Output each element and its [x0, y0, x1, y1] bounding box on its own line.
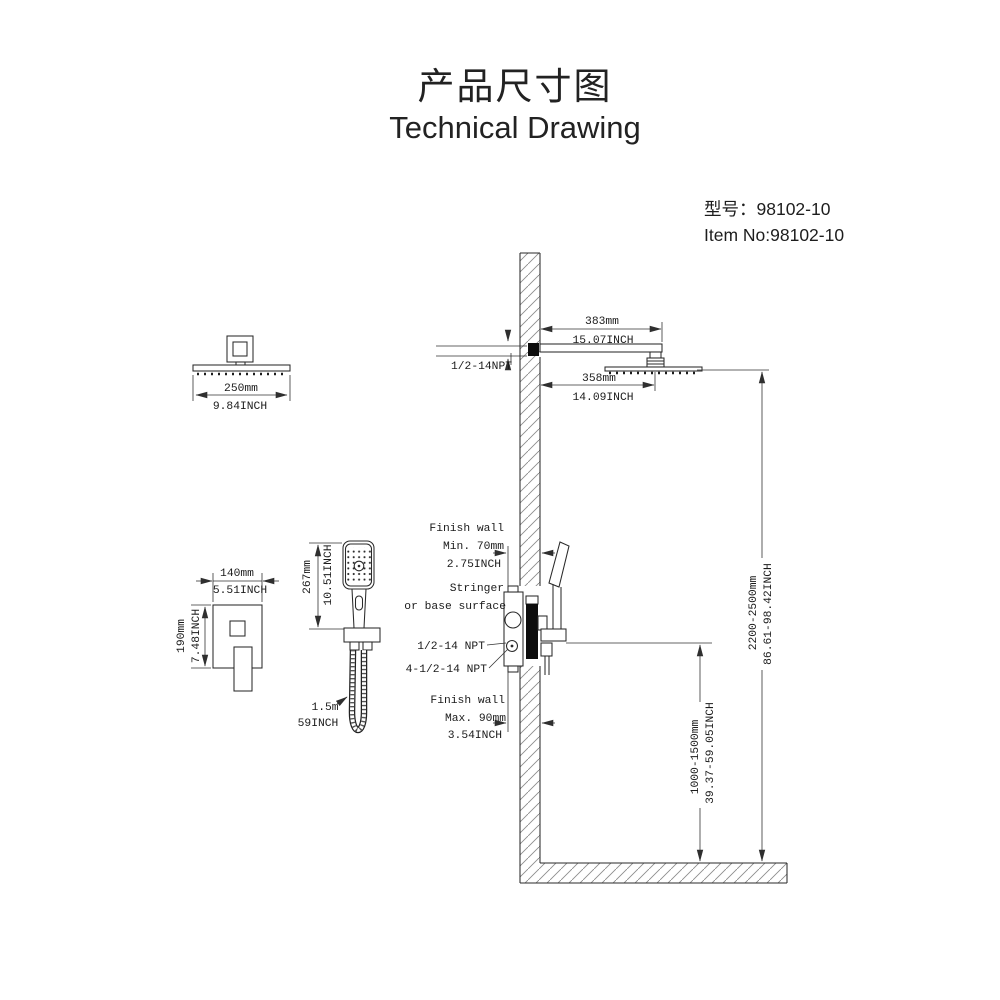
valve-handle [234, 647, 252, 691]
diverter-button [230, 621, 245, 636]
callout-finish-wall-min-2: Min. 70mm [443, 541, 504, 553]
model-block: 型号：98102-10 Item No:98102-10 [704, 199, 844, 245]
dim-hose-inch: 59INCH [298, 718, 339, 730]
valve-width-dimension: 140mm 5.51INCH [196, 568, 279, 602]
valve-front-view: 140mm 5.51INCH 190mm 7.48INCH [176, 568, 279, 691]
callout-finish-wall-max-3: 3.54INCH [448, 730, 502, 742]
dim-arm-to-head-inch: 14.09INCH [572, 392, 633, 404]
stringer-note: Stringer or base surface [404, 583, 506, 613]
hand-shower-holder [344, 628, 380, 642]
valve-trim-plate-section [526, 604, 538, 659]
arm-head-connector [647, 352, 664, 367]
dim-arm-length-mm: 383mm [585, 316, 619, 328]
hand-shower-length-dimension: 267mm 10.51INCH [302, 543, 344, 629]
page-title-chinese: 产品尺寸图 [418, 66, 613, 107]
shower-head-profile-view: 250mm 9.84INCH [193, 336, 290, 413]
page-title-english: Technical Drawing [389, 110, 641, 145]
callout-arm-thread: 1/2-14NPT [451, 361, 512, 373]
shower-hose [352, 650, 364, 730]
item-number: Item No:98102-10 [704, 225, 844, 245]
dim-valve-height-mm: 190mm [176, 619, 188, 653]
hand-shower-view: 267mm 10.51INCH 1.5m 59INCH [298, 541, 380, 730]
dim-head-width-mm: 250mm [224, 383, 258, 395]
holder-outlet-right [363, 642, 372, 650]
callout-finish-wall-min-1: Finish wall [429, 523, 504, 535]
model-number: 型号：98102-10 [704, 199, 831, 219]
rough-in-valve-body [504, 592, 523, 666]
callout-valve-thread-2: 4-1/2-14 NPT [406, 664, 488, 676]
holder-bracket-side [541, 629, 566, 641]
valve-height-range-dimension: 1000-1500mm 39.37-59.05INCH [566, 643, 717, 861]
arm-wall-fitting [528, 343, 539, 356]
installation-side-view: 1/2-14NPT 383mm 15.07INCH 358mm 14.09INC… [404, 253, 787, 883]
callout-stringer-1: Stringer [450, 583, 504, 595]
callout-finish-wall-min-3: 2.75INCH [447, 559, 501, 571]
callout-finish-wall-max-1: Finish wall [430, 695, 505, 707]
dim-head-height-inch: 86.61-98.42INCH [763, 563, 775, 665]
valve-height-dimension: 190mm 7.48INCH [176, 605, 211, 668]
head-width-dimension: 250mm 9.84INCH [193, 375, 290, 413]
dim-arm-length-inch: 15.07INCH [572, 335, 633, 347]
title-block: 产品尺寸图 Technical Drawing [389, 66, 641, 145]
valve-knob-side [538, 616, 547, 630]
technical-drawing-page: 产品尺寸图 Technical Drawing 型号：98102-10 Item… [0, 0, 1000, 1000]
dim-hand-shower-mm: 267mm [302, 560, 314, 594]
callout-valve-thread-1: 1/2-14 NPT [417, 641, 485, 653]
holder-outlet-left [350, 642, 359, 650]
dim-head-width-inch: 9.84INCH [213, 401, 267, 413]
dim-head-height-mm: 2200-2500mm [748, 575, 760, 650]
floor-section [520, 863, 787, 883]
valve-thread-callouts: 1/2-14 NPT 4-1/2-14 NPT [406, 641, 508, 676]
spout-outlet [541, 643, 552, 656]
arm-thread-callout: 1/2-14NPT [436, 330, 527, 373]
hose-length-label: 1.5m 59INCH [298, 697, 347, 730]
shower-head-plate [193, 365, 290, 371]
dim-valve-height-inch: 7.48INCH [191, 609, 203, 663]
docked-hand-shower [549, 542, 569, 587]
dim-valve-width-inch: 5.51INCH [213, 585, 267, 597]
hand-shower-handle [352, 589, 366, 628]
rain-shower-head [605, 367, 702, 371]
arm-length-dimension: 383mm 15.07INCH [541, 316, 662, 347]
dim-hose-m: 1.5m [311, 702, 338, 714]
dim-valve-height-range-mm: 1000-1500mm [690, 719, 702, 794]
dim-arm-to-head-mm: 358mm [582, 373, 616, 385]
dim-valve-width-mm: 140mm [220, 568, 254, 580]
head-mount-bracket-inner [233, 342, 247, 356]
technical-drawing-canvas: 产品尺寸图 Technical Drawing 型号：98102-10 Item… [0, 0, 1000, 1000]
dim-hand-shower-inch: 10.51INCH [323, 544, 335, 605]
dim-valve-height-range-inch: 39.37-59.05INCH [705, 702, 717, 804]
arm-to-head-dimension: 358mm 14.09INCH [541, 372, 655, 404]
callout-finish-wall-max-2: Max. 90mm [445, 713, 506, 725]
callout-stringer-2: or base surface [404, 601, 506, 613]
